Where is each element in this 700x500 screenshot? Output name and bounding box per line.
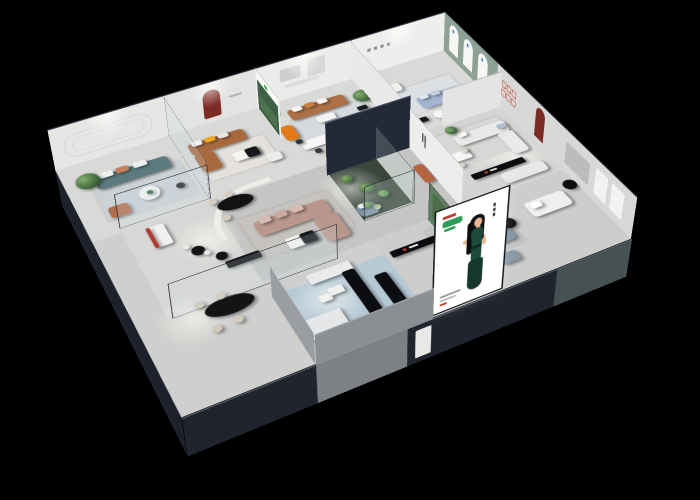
script-logo-stroke [422, 132, 423, 142]
banner-vertical-text [493, 202, 496, 206]
banner-vertical-text [493, 207, 496, 211]
white-window [609, 183, 625, 221]
arch-blue-logo-mark [453, 29, 455, 33]
se-wall-white-panel [415, 325, 431, 359]
red-arched-niche [534, 105, 545, 144]
ceiling-light-glow [379, 21, 418, 57]
showroom-render-stage [0, 0, 700, 500]
banner-woman-figure [460, 209, 492, 297]
banner-footer-red [440, 302, 447, 307]
wall-logo-dot [374, 46, 377, 50]
banner-woman-dress-skirt [467, 256, 484, 292]
arch-blue-logo-mark [467, 43, 469, 48]
white-window [593, 167, 608, 204]
banner-vertical-text [493, 212, 496, 216]
wall-logo-dot [367, 48, 370, 52]
arch-blue-logo-mark [481, 58, 483, 63]
script-logo-stroke [424, 135, 425, 149]
